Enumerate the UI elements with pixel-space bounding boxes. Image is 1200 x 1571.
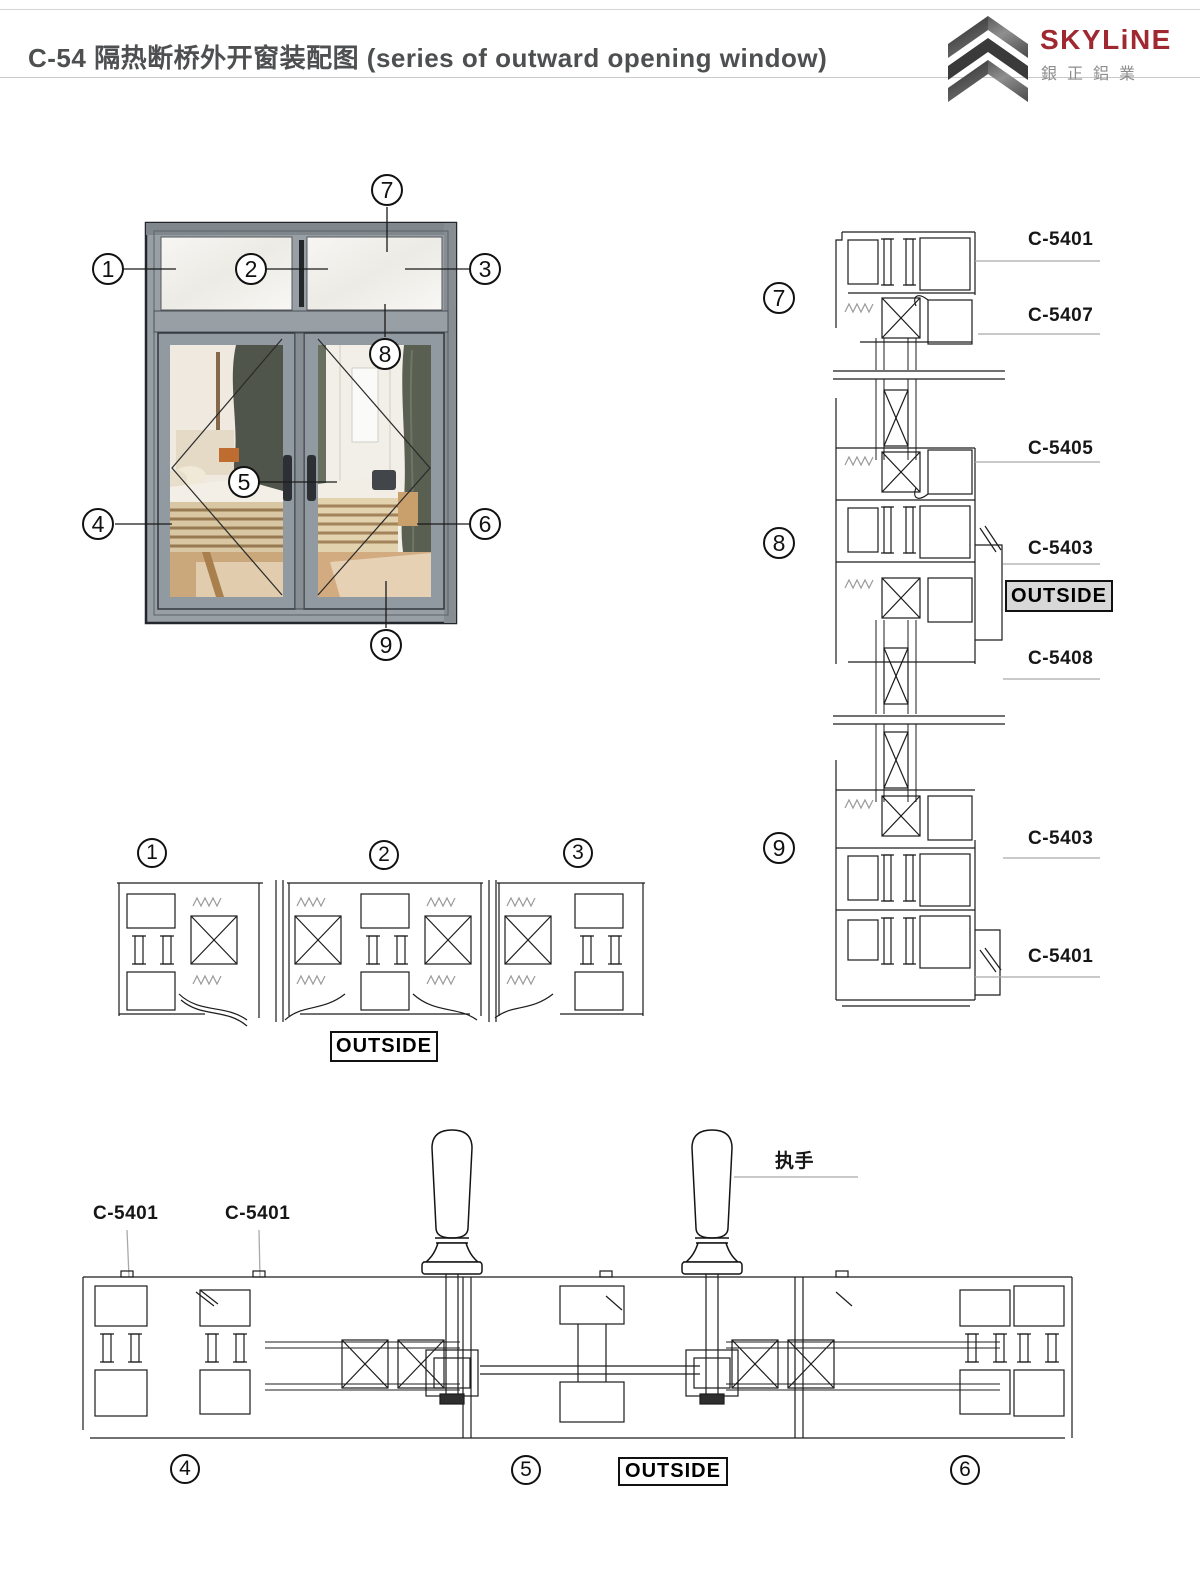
callout-8: 8 — [369, 338, 401, 370]
skyline-logo-icon — [948, 16, 1028, 102]
bedroom-photo-left — [163, 345, 283, 597]
callout-6: 6 — [469, 508, 501, 540]
callout-1: 1 — [92, 253, 124, 285]
right-sections-drawing — [833, 232, 1005, 1006]
callout-2: 2 — [235, 253, 267, 285]
page: C-54 隔热断桥外开窗装配图 (series of outward openi… — [0, 0, 1200, 1571]
page-title: C-54 隔热断桥外开窗装配图 (series of outward openi… — [28, 38, 827, 75]
window-illustration — [146, 223, 456, 623]
section-label-9: 9 — [763, 832, 795, 864]
window-handle-right — [307, 455, 316, 501]
outside-label-right: OUTSIDE — [1005, 580, 1113, 612]
outside-label-bottom: OUTSIDE — [618, 1457, 728, 1486]
section-label-6: 6 — [950, 1455, 980, 1485]
section-label-1: 1 — [137, 838, 167, 868]
section-label-5: 5 — [511, 1455, 541, 1485]
handle-label: 执手 — [775, 1146, 814, 1173]
part-label-b-c5401-2: C-5401 — [225, 1203, 290, 1225]
diagram-canvas — [0, 0, 1200, 1571]
part-label-c5407: C-5407 — [1028, 305, 1093, 327]
handle-right — [682, 1130, 742, 1274]
handle-left — [422, 1130, 482, 1274]
brand-name: SKYLiNE — [1040, 24, 1172, 56]
part-label-c5403-a: C-5403 — [1028, 538, 1093, 560]
section-label-8: 8 — [763, 527, 795, 559]
section-label-2: 2 — [369, 840, 399, 870]
bedroom-photo-right — [318, 345, 431, 597]
callout-9: 9 — [370, 629, 402, 661]
outside-label-middle: OUTSIDE — [330, 1031, 438, 1062]
callout-5: 5 — [228, 466, 260, 498]
part-label-b-c5401-1: C-5401 — [93, 1203, 158, 1225]
middle-sections-drawing — [117, 880, 645, 1026]
callout-7: 7 — [371, 174, 403, 206]
part-label-c5405: C-5405 — [1028, 438, 1093, 460]
part-label-c5403-b: C-5403 — [1028, 828, 1093, 850]
window-handle-left — [283, 455, 292, 501]
part-label-c5408: C-5408 — [1028, 648, 1093, 670]
callout-4: 4 — [82, 508, 114, 540]
section-label-4: 4 — [170, 1454, 200, 1484]
brand-name-cn: 銀正鋁業 — [1041, 60, 1145, 84]
section-label-7: 7 — [763, 282, 795, 314]
part-label-c5401-top: C-5401 — [1028, 229, 1093, 251]
handle-drawings — [422, 1130, 742, 1274]
bottom-section-drawing — [83, 1271, 1072, 1438]
section-label-3: 3 — [563, 838, 593, 868]
callout-3: 3 — [469, 253, 501, 285]
part-label-c5401-bot: C-5401 — [1028, 946, 1093, 968]
